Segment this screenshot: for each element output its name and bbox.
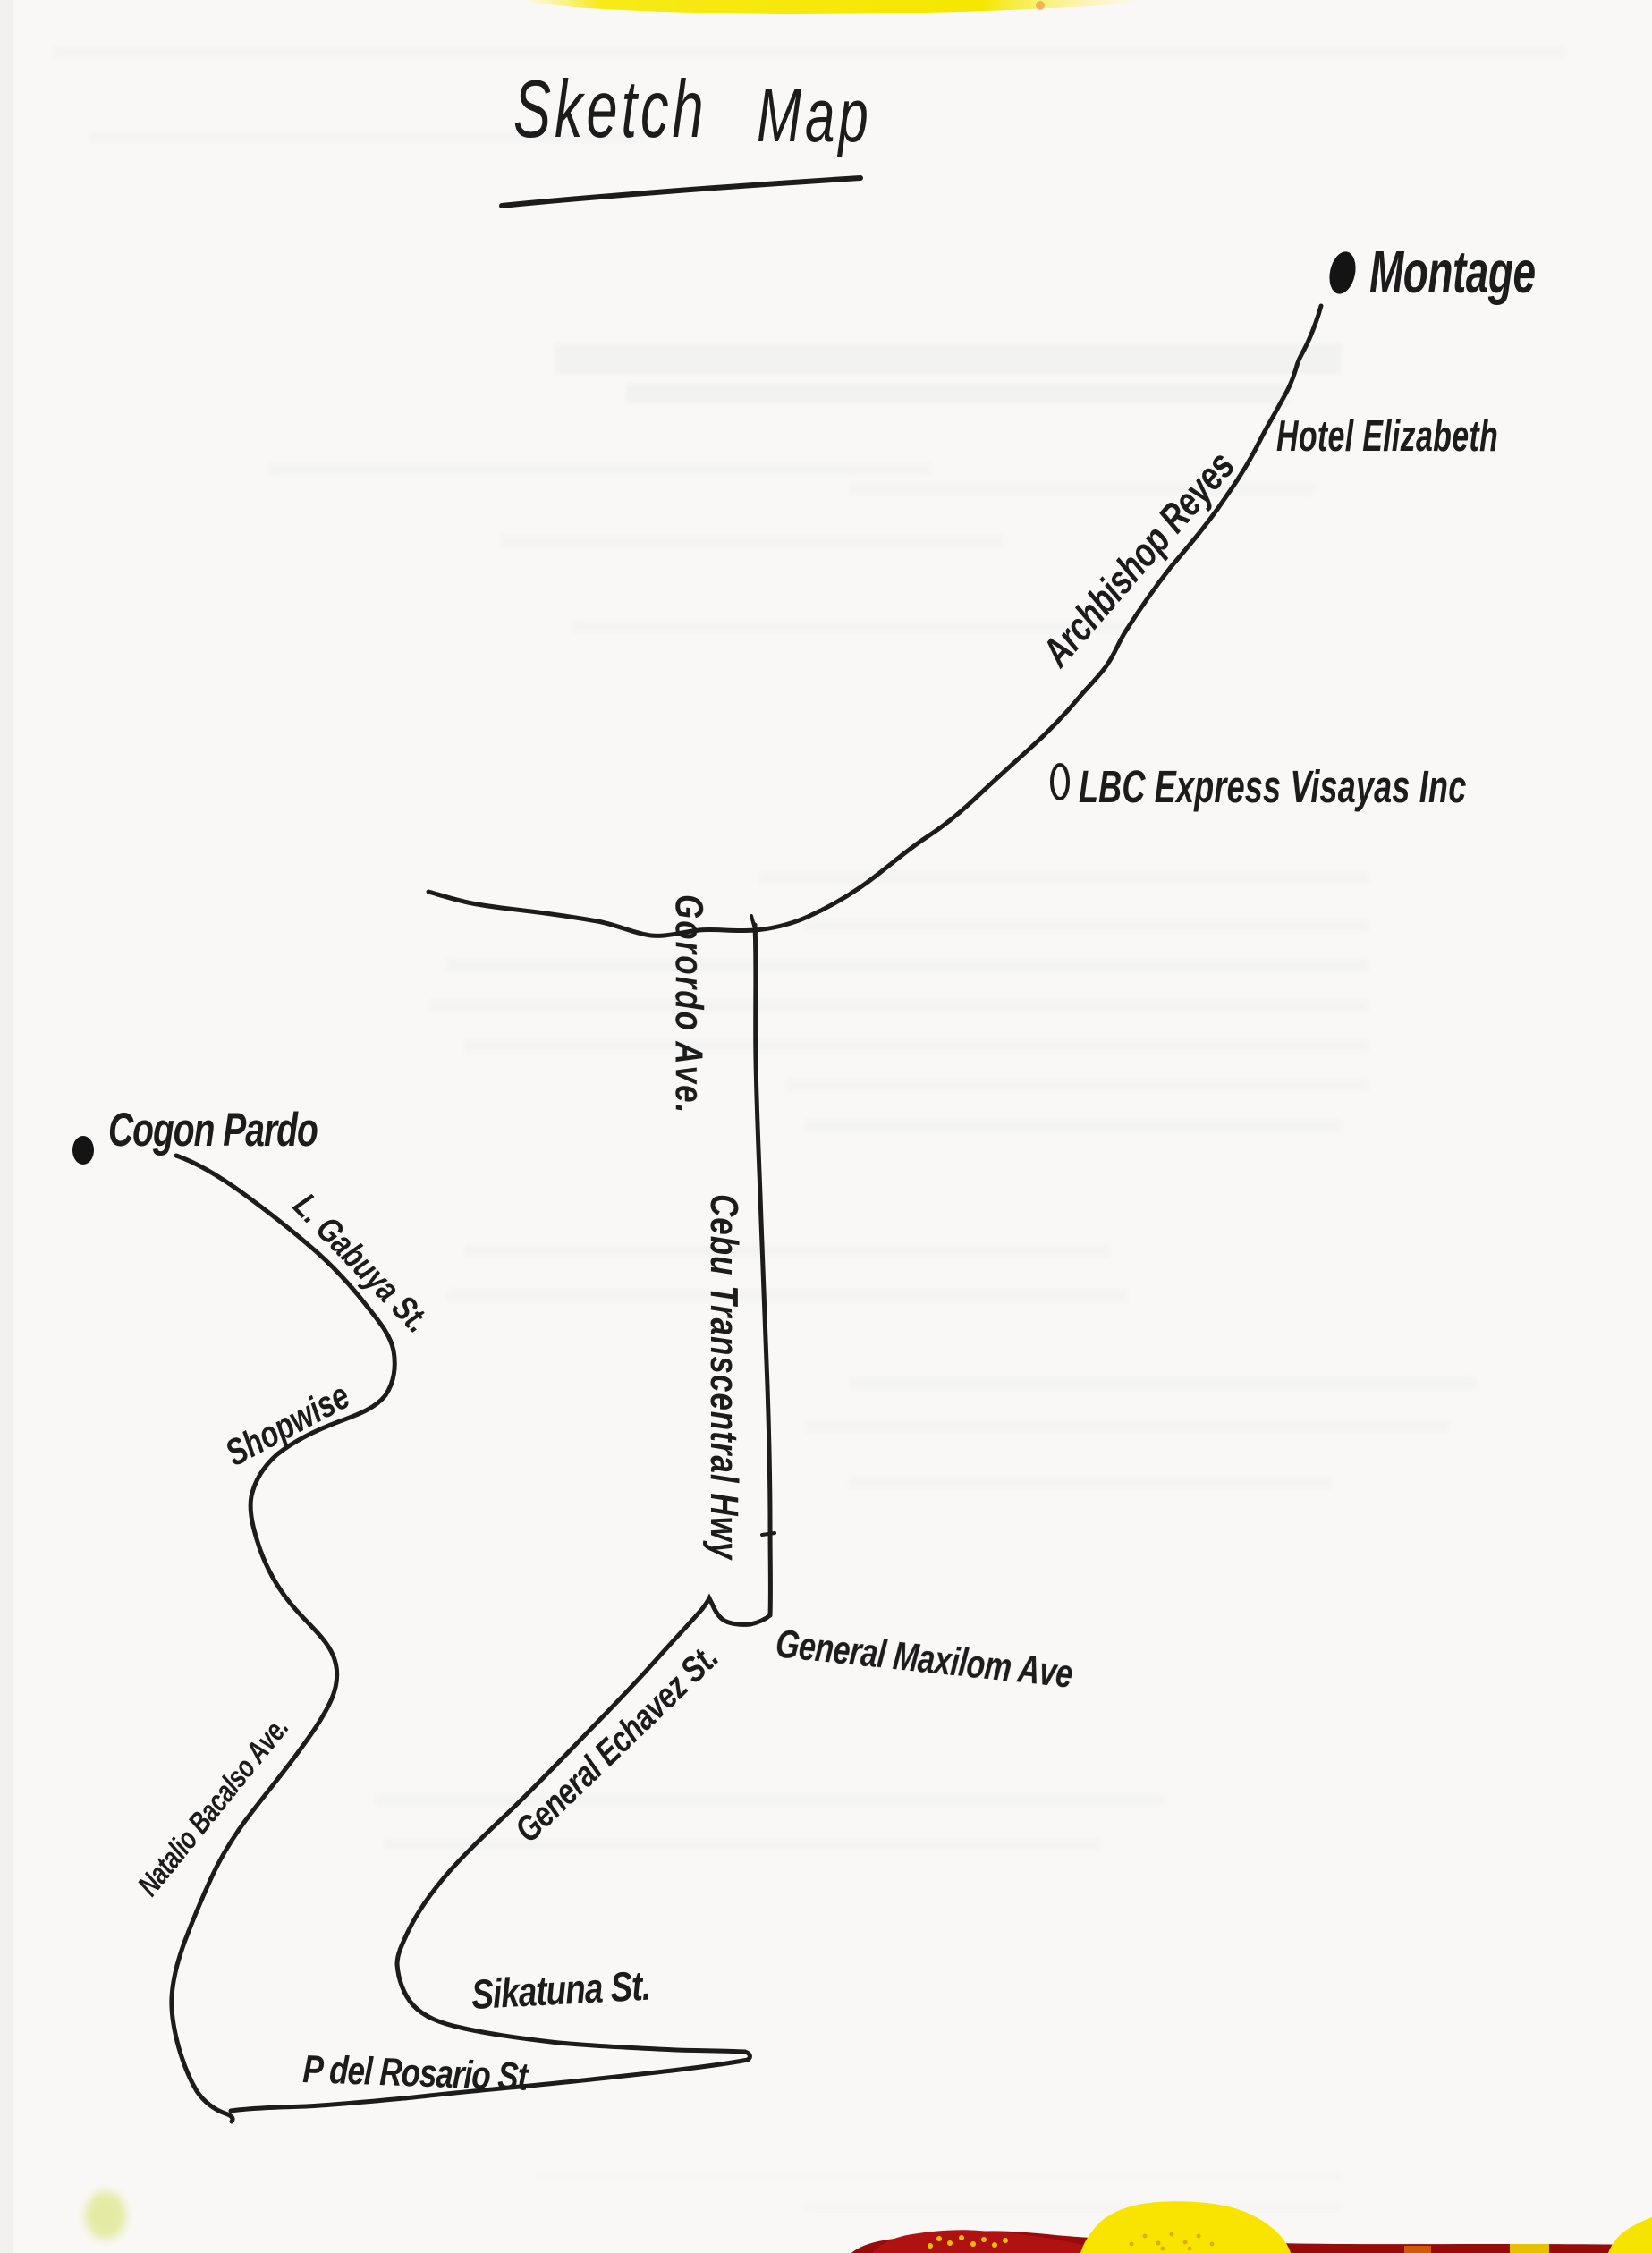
svg-text:Sketch: Sketch	[513, 63, 707, 154]
svg-text:Cebu Transcentral Hwy: Cebu Transcentral Hwy	[702, 1194, 746, 1561]
svg-text:Map: Map	[757, 74, 872, 157]
svg-text:Hotel Elizabeth: Hotel Elizabeth	[1276, 411, 1498, 461]
svg-text:LBC Express Visayas Inc: LBC Express Visayas Inc	[1079, 762, 1466, 813]
svg-text:Cogon Pardo: Cogon Pardo	[108, 1103, 318, 1156]
svg-text:P del Rosario St: P del Rosario St	[302, 2047, 530, 2098]
svg-text:Montage: Montage	[1369, 240, 1536, 307]
svg-text:Gorordo Ave.: Gorordo Ave.	[667, 894, 711, 1114]
svg-text:Sikatuna St.: Sikatuna St.	[470, 1962, 651, 2018]
